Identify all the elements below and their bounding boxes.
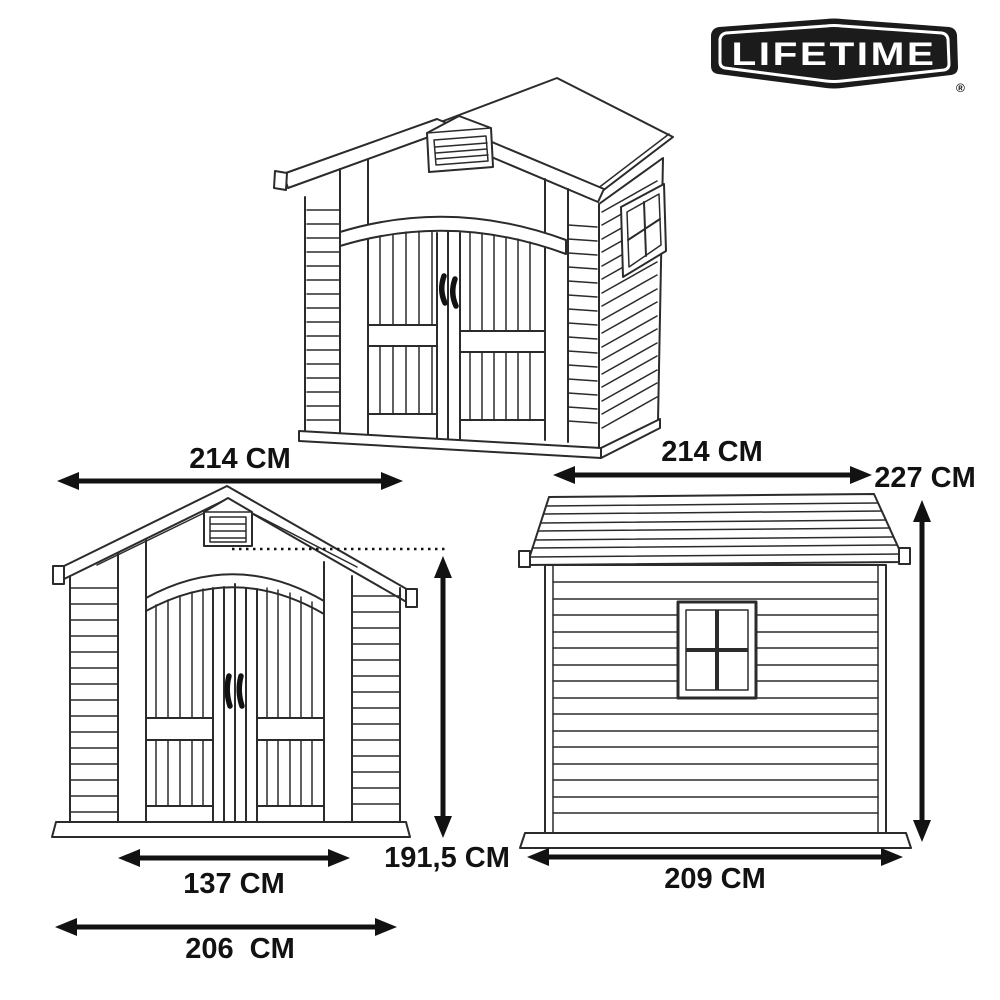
- right-door-rails: [460, 331, 545, 420]
- arrow-head-right: [381, 472, 403, 490]
- arrow-head-left: [553, 466, 575, 484]
- eave-height-label: 191,5 CM: [384, 842, 510, 874]
- arrow-head-top: [913, 500, 931, 522]
- door-arch-band: [340, 217, 566, 254]
- dimension-side-base-width: 209 CM: [527, 848, 903, 895]
- lifetime-logo: LIFETIME ®: [711, 19, 965, 96]
- dimension-front-base-width: 206 CM: [55, 918, 397, 965]
- perspective-view: [274, 78, 673, 458]
- left-door-rails: [368, 325, 437, 414]
- front-roof-right-cap: [406, 589, 417, 607]
- right-door-lower-slats: [470, 352, 530, 420]
- front-right-door-lower-slats: [267, 740, 312, 806]
- front-base-skirt: [52, 822, 410, 837]
- side-width-label: 214 CM: [661, 436, 763, 468]
- door-center-stiles: [437, 232, 460, 440]
- fascia-left-end-cap: [274, 171, 287, 190]
- arrow-head-left: [57, 472, 79, 490]
- right-door-upper-slats: [470, 233, 530, 330]
- arrow-head-right: [375, 918, 397, 936]
- arrow-head-right: [850, 466, 872, 484]
- left-door-upper-slats: [380, 231, 432, 325]
- arrow-head-left: [118, 849, 140, 867]
- front-right-siding-lines: [568, 225, 597, 423]
- front-left-door-lower-slats: [156, 740, 203, 806]
- diagram-scene: 214 CM 214 CM 227 CM 191,5 CM 137 CM: [0, 0, 1000, 1000]
- front-base-width-label: 206 CM: [185, 933, 295, 965]
- arrow-head-right: [328, 849, 350, 867]
- door-width-label: 137 CM: [183, 868, 285, 900]
- side-view: [519, 494, 911, 848]
- dimension-front-width: 214 CM: [57, 443, 403, 490]
- base-skirt-front: [299, 431, 601, 458]
- arrow-head-left: [527, 848, 549, 866]
- front-left-door-upper-slats: [156, 589, 203, 718]
- dimension-total-height: 227 CM: [874, 462, 976, 842]
- front-roof-left-cap: [53, 566, 64, 584]
- front-view: [52, 486, 417, 837]
- arrow-head-right: [881, 848, 903, 866]
- front-width-label: 214 CM: [189, 443, 291, 475]
- front-left-siding-lines: [307, 210, 340, 420]
- front-right-door-upper-slats: [267, 588, 312, 718]
- total-height-label: 227 CM: [874, 462, 976, 494]
- side-base-width-label: 209 CM: [664, 863, 766, 895]
- arrow-head-bottom: [913, 820, 931, 842]
- arrow-head-left: [55, 918, 77, 936]
- left-door-lower-slats: [380, 346, 432, 414]
- logo-registered-mark: ®: [956, 81, 965, 95]
- front-door-stiles: [213, 584, 257, 822]
- logo-brand-text: LIFETIME: [732, 36, 937, 72]
- front-right-siding-lines: [352, 596, 400, 804]
- front-left-siding-lines: [70, 588, 118, 812]
- shed-dimension-diagram: 214 CM 214 CM 227 CM 191,5 CM 137 CM: [0, 0, 1000, 1000]
- side-base-skirt: [520, 833, 911, 848]
- dimension-door-width: 137 CM: [118, 849, 350, 900]
- arrow-head-top: [434, 556, 452, 578]
- arrow-head-bottom: [434, 816, 452, 838]
